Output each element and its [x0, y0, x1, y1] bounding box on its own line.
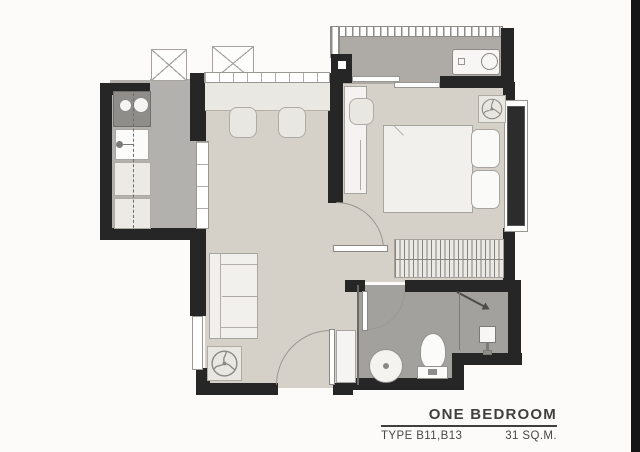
sliding-door-balcony-panel2 — [394, 82, 440, 88]
wall-bedroom-right-low — [503, 228, 515, 286]
wall-bath-left-thin — [357, 285, 359, 385]
photo-edge-bar — [631, 0, 640, 452]
window-living-left — [192, 316, 203, 370]
title-underline — [381, 425, 557, 427]
dining-counter — [205, 83, 330, 111]
sliding-door-kitchen — [196, 141, 209, 229]
sofa-cushion-line — [222, 296, 257, 297]
wall-balcony-divider — [440, 76, 503, 88]
floorplan-page: { "floorplan": { "title": "ONE BEDROOM",… — [0, 0, 640, 452]
wall-kitchen-left — [100, 83, 112, 240]
fan-coil-icon — [207, 346, 242, 381]
wall-bath-right — [508, 283, 521, 359]
bathroom-door-leaf — [362, 291, 368, 331]
overhead-cabinet-line — [133, 93, 134, 228]
shower-enclosure-line — [459, 292, 460, 350]
toilet-icon — [420, 333, 446, 369]
wall-bottom-left — [205, 383, 278, 395]
stool-icon — [278, 107, 306, 138]
fan-coil-icon — [478, 95, 506, 123]
fan-icon — [208, 347, 241, 380]
sofa-backrest — [210, 254, 221, 338]
condenser-part — [458, 58, 465, 65]
window-living-top — [204, 72, 330, 83]
plan-title: ONE BEDROOM — [380, 406, 557, 423]
sofa-armrest — [221, 327, 257, 338]
sofa-armrest — [221, 254, 257, 265]
wall-pillar-lower — [190, 228, 206, 316]
shower-mixer-icon — [479, 326, 496, 343]
shower-mixer-base — [483, 350, 492, 355]
balcony-column-core — [338, 61, 346, 69]
sofa-icon — [209, 253, 258, 339]
wardrobe-icon — [394, 239, 504, 278]
pillow-icon — [471, 129, 500, 168]
plan-type-label: TYPE B11,B13 — [381, 430, 462, 442]
ac-condenser-icon — [151, 49, 187, 81]
wall-bottom-mid — [333, 383, 353, 395]
wall-bath-bottom — [352, 378, 454, 390]
stool-icon — [229, 107, 257, 138]
wall-living-bedroom-divider — [328, 73, 343, 203]
stool-icon — [349, 98, 374, 125]
bedroom-door-leaf — [333, 245, 388, 252]
washbasin-drain — [383, 363, 389, 369]
burner-icon — [119, 99, 132, 112]
desk-edge-line — [360, 140, 361, 190]
ac-condenser-unit-icon — [452, 49, 500, 75]
wardrobe-rail-line — [395, 259, 503, 260]
fan-icon — [479, 96, 505, 122]
sliding-door-balcony-panel1 — [352, 76, 400, 82]
plan-area-label: 31 SQ.M. — [505, 430, 557, 442]
toilet-flush-button — [428, 369, 437, 375]
entrance-door-leaf — [329, 329, 335, 385]
shaft-cabinet — [336, 330, 356, 383]
pillow-icon — [471, 170, 500, 209]
condenser-fan-icon — [481, 53, 498, 70]
balcony-railing — [330, 26, 503, 37]
wall-pillar-upper — [190, 73, 206, 141]
window-bay-glass — [507, 106, 525, 226]
plan-subtitle-row: TYPE B11,B13 31 SQ.M. — [381, 430, 557, 442]
wall-kitchen-bottom — [100, 228, 190, 240]
burner-icon — [133, 97, 149, 113]
